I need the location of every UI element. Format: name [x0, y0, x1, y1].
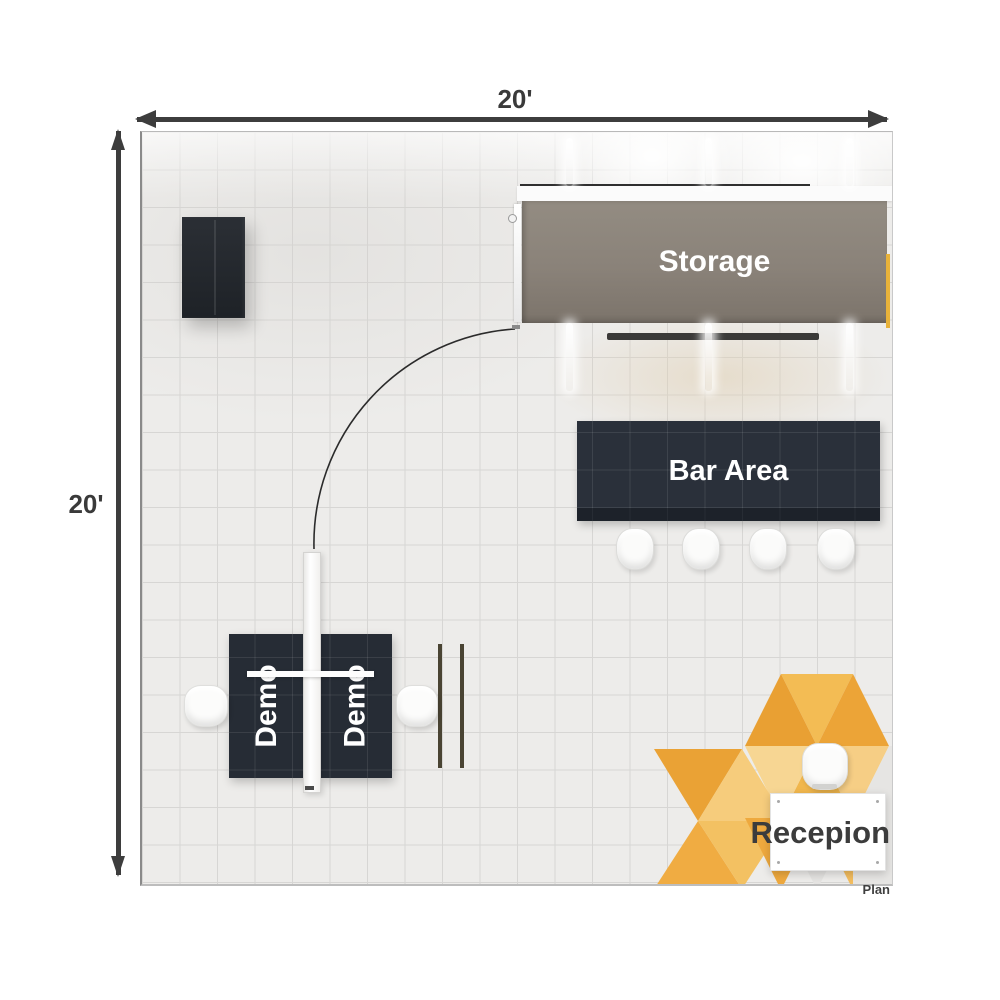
bar-stool [682, 528, 720, 570]
width-dimension-label: 20' [460, 84, 570, 115]
back-wall [517, 186, 892, 201]
arrow-right-head-icon [868, 110, 889, 128]
storage-accent-edge [886, 254, 890, 328]
reception-chair [802, 743, 848, 790]
bar-stool [817, 528, 855, 570]
demo-counter-line [247, 671, 374, 677]
storage-area: Storage [522, 201, 887, 323]
bar-stool [616, 528, 654, 570]
demo-divider-endcap [305, 786, 314, 790]
desk-corner-fixing [777, 800, 780, 803]
light-tube [705, 323, 712, 391]
storage-front-shelf [607, 333, 819, 340]
storage-label: Storage [659, 245, 771, 279]
desk-corner-fixing [876, 861, 879, 864]
back-wall-edge [520, 184, 810, 186]
demo-station-right: Demo [319, 634, 392, 778]
demo-panel-edge [438, 644, 442, 768]
storage-door-knob [508, 214, 517, 223]
light-tube [846, 323, 853, 391]
booth-floor: Storage Bar Area Demo D [140, 131, 893, 886]
width-dimension-arrow [137, 117, 887, 122]
desk-corner-fixing [876, 800, 879, 803]
arrow-up-head-icon [111, 129, 125, 150]
desk-corner-fixing [777, 861, 780, 864]
demo-chair-right [396, 685, 438, 727]
demo-chair-left [184, 685, 228, 727]
light-tube [705, 138, 712, 186]
display-cabinet [182, 217, 245, 318]
light-tube [566, 138, 573, 186]
arrow-left-head-icon [135, 110, 156, 128]
bar-area-label: Bar Area [669, 455, 789, 488]
bar-stool [749, 528, 787, 570]
light-tube [846, 138, 853, 186]
bar-area: Bar Area [577, 421, 880, 521]
height-dimension-label: 20' [62, 489, 110, 520]
light-tube [566, 323, 573, 391]
demo-panel-edge [460, 644, 464, 768]
floor-plan-canvas: 20' 20' Storage Bar Area [0, 0, 1000, 1000]
reception-chair-base [812, 784, 837, 789]
plan-caption: Plan [863, 882, 890, 897]
height-dimension-arrow [116, 131, 121, 875]
arrow-down-head-icon [111, 856, 125, 877]
reception-label: Recepion [750, 815, 890, 851]
